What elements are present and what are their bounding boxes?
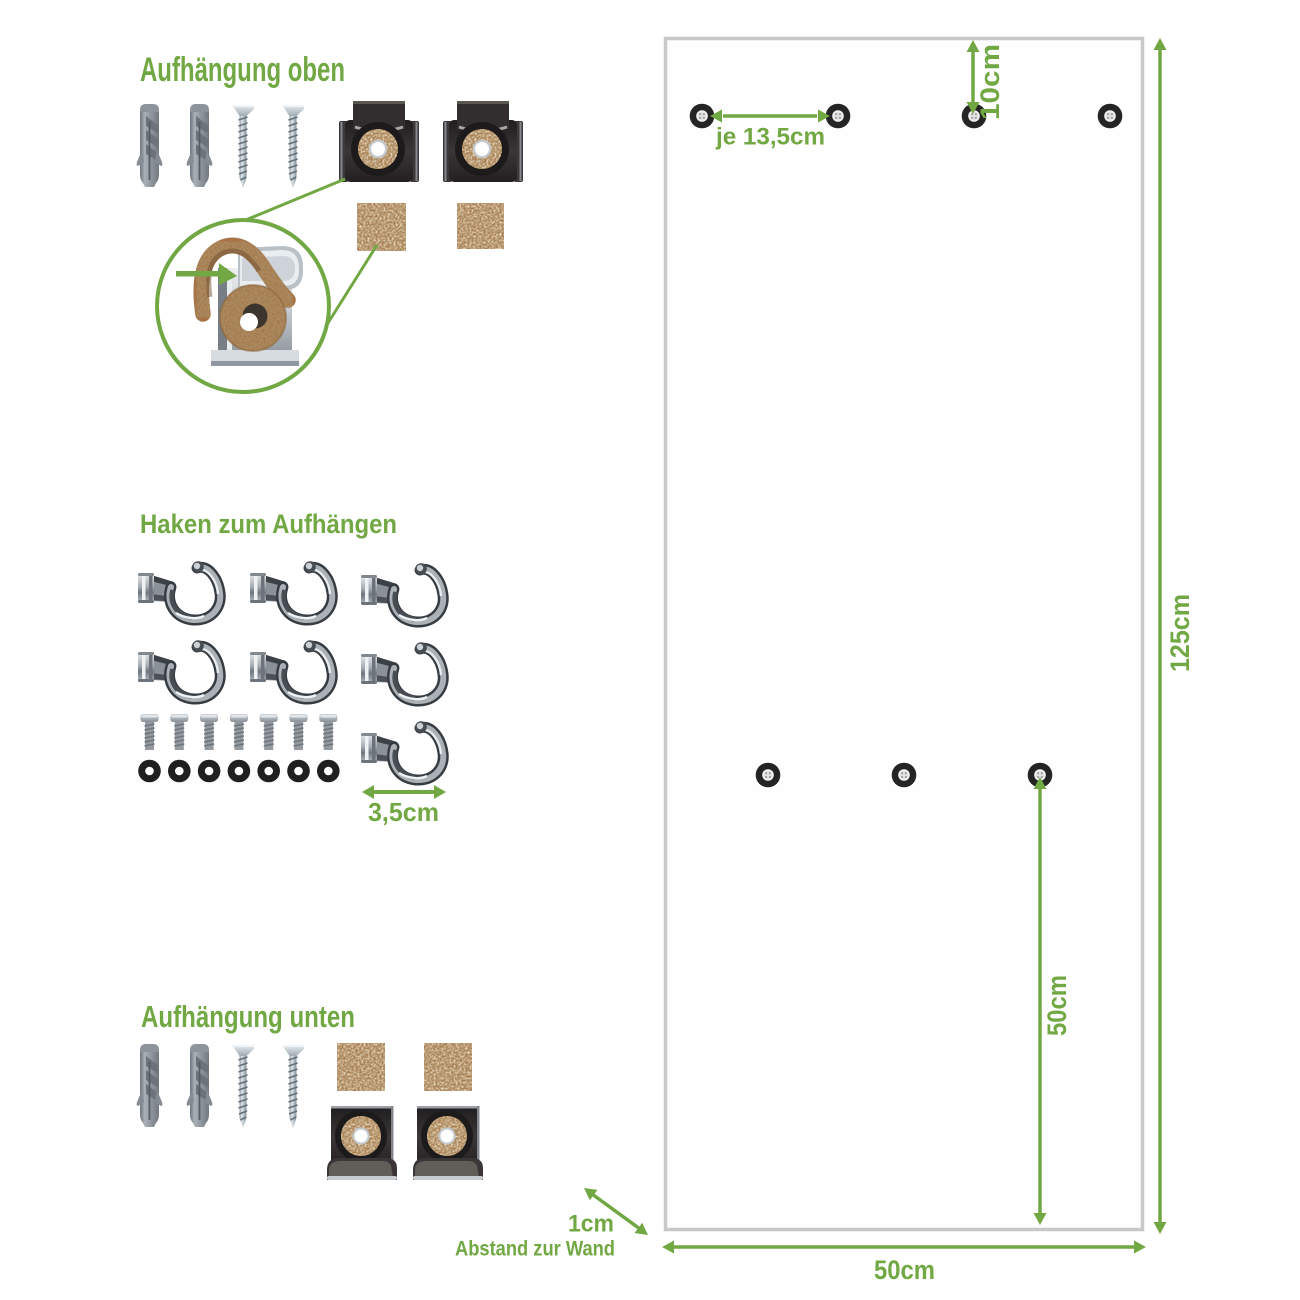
svg-text:je 13,5cm: je 13,5cm <box>715 124 825 151</box>
svg-text:50cm: 50cm <box>1042 975 1072 1036</box>
svg-text:125cm: 125cm <box>1165 594 1195 672</box>
svg-text:Abstand zur Wand: Abstand zur Wand <box>455 1237 615 1261</box>
svg-text:50cm: 50cm <box>874 1255 935 1285</box>
svg-text:3,5cm: 3,5cm <box>368 797 439 827</box>
svg-text:1cm: 1cm <box>568 1211 614 1238</box>
svg-text:Aufhängung oben: Aufhängung oben <box>140 51 345 89</box>
svg-text:Aufhängung unten: Aufhängung unten <box>141 999 355 1034</box>
svg-text:Haken zum Aufhängen: Haken zum Aufhängen <box>140 509 397 539</box>
svg-text:10cm: 10cm <box>975 44 1005 120</box>
